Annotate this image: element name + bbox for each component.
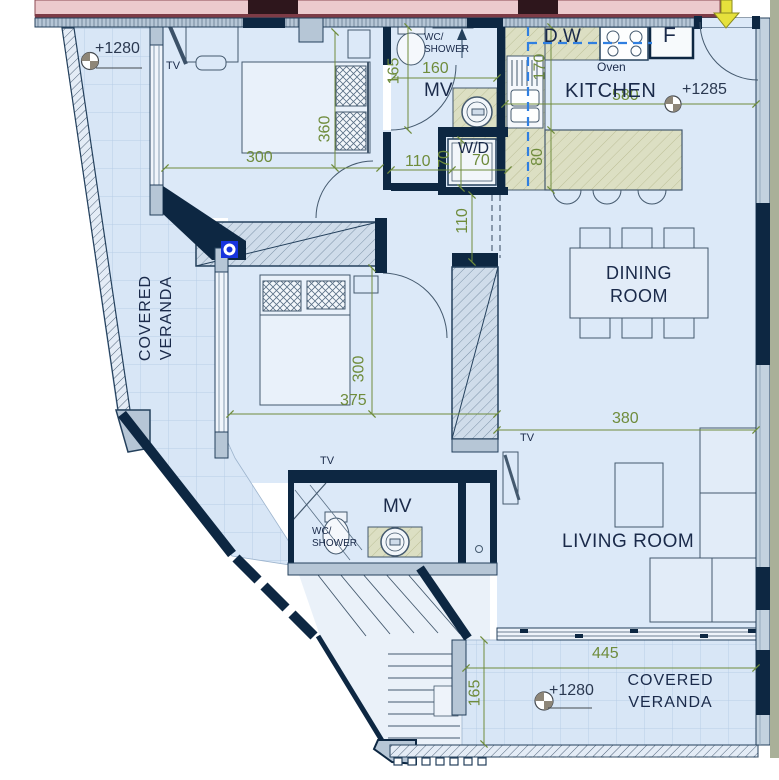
floor-plan: +1280 TV WC/SHOWER MV 160 165 300 360 11…	[0, 0, 779, 780]
wd-label: W/D	[458, 140, 489, 158]
dim-bedroom1-width: 300	[246, 149, 273, 167]
wardrobe-bedroom2	[452, 253, 498, 452]
dim-wd-depth: 70	[436, 150, 454, 168]
basin-bottom-icon	[368, 527, 422, 557]
coffee-table-icon	[615, 463, 663, 527]
tv-label-bedroom2: TV	[320, 455, 334, 467]
wc-top-label: WC/SHOWER	[424, 32, 469, 56]
kitchen-label: KITCHEN	[565, 80, 656, 103]
nightstand-icon	[348, 30, 370, 58]
tv-label-bedroom1: TV	[166, 60, 180, 72]
railing-posts	[394, 758, 486, 765]
veranda-left-label: COVEREDVERANDA	[135, 233, 179, 403]
mv-bottom-label: MV	[383, 496, 412, 518]
dishwasher-label: D.W	[544, 26, 581, 48]
party-wall-pink	[35, 0, 720, 16]
window-bedroom1	[150, 27, 163, 215]
dining-room-label: DININGROOM	[579, 262, 699, 308]
fixture-blue-icon	[221, 241, 238, 258]
dim-veranda-bottom-depth: 165	[466, 680, 484, 707]
tv-unit-living-icon	[503, 452, 519, 504]
dim-bedroom1-depth: 360	[316, 116, 334, 143]
oven-label: Oven	[597, 60, 626, 74]
dim-corridor-width: 110	[454, 208, 472, 234]
top-wall	[35, 18, 760, 27]
dim-wc-width: 160	[422, 60, 449, 78]
level-text-veranda-left: +1280	[95, 40, 140, 58]
right-wall	[756, 0, 779, 758]
dim-bedroom2-width: 375	[340, 392, 367, 410]
level-text-kitchen: +1285	[682, 81, 727, 99]
railing-bottom	[390, 745, 758, 757]
fridge-label: F	[663, 24, 676, 48]
dim-island-depth: 80	[529, 148, 547, 166]
dim-hall-width: 110	[405, 153, 431, 171]
dim-wc-depth: 165	[385, 58, 403, 85]
island-icon	[545, 130, 682, 190]
dim-living-width: 380	[612, 410, 639, 428]
dim-veranda-bottom-width: 445	[592, 645, 619, 663]
tv-label-living: TV	[520, 432, 534, 444]
floor-plan-drawing	[0, 0, 779, 780]
dim-kitchen-counter: 170	[531, 54, 549, 81]
window-bedroom2	[215, 248, 228, 458]
level-text-veranda-bottom: +1280	[549, 682, 594, 700]
bed1-icon	[242, 62, 370, 153]
nightstand2-icon	[354, 276, 378, 293]
wc-bottom-label: WC/SHOWER	[312, 526, 357, 550]
bed2-icon	[260, 275, 350, 405]
living-room-label: LIVING ROOM	[562, 531, 694, 553]
dim-bedroom2-depth: 300	[350, 356, 368, 383]
sliding-door	[497, 628, 758, 640]
level-marker-kitchen	[665, 96, 681, 112]
veranda-bottom-label: COVEREDVERANDA	[598, 670, 743, 714]
mv-top-label: MV	[424, 80, 453, 102]
